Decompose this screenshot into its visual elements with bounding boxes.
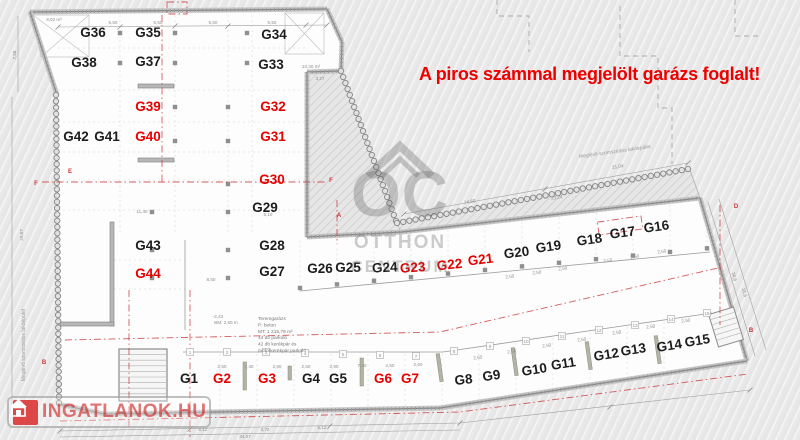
garage-spot-label-G26: G26 [307, 261, 333, 276]
garage-spot-label-G24: G24 [372, 259, 399, 275]
svg-text:11: 11 [560, 334, 565, 339]
garage-spot-label-G29: G29 [252, 200, 278, 215]
info-line: 42 db kerékpár és [258, 342, 297, 348]
info-line: P: beton [258, 322, 276, 328]
info-line: Teremgarázs [258, 316, 286, 322]
garage-spot-label-G20: G20 [503, 244, 530, 262]
dimension-label: 11,40 [136, 209, 148, 214]
garage-spot-label-G21: G21 [467, 250, 495, 268]
dimension-label: 2,60 [273, 364, 282, 369]
garage-spot-label-G40: G40 [135, 129, 161, 144]
section-marker: B [749, 328, 754, 334]
dimension-label: 2,90 [330, 364, 339, 369]
section-marker: A [337, 213, 342, 219]
garage-spot-label-G25: G25 [335, 260, 361, 275]
svg-text:13: 13 [632, 323, 638, 328]
svg-text:10: 10 [523, 339, 529, 344]
dimension-label: 5,50 [209, 20, 218, 25]
garage-spot-label-G38: G38 [71, 55, 97, 70]
svg-text:14: 14 [668, 317, 674, 322]
logo-text: INGATLANOK.HU [42, 401, 206, 423]
garage-spot-label-G2: G2 [213, 371, 231, 386]
garage-spot-label-G39: G39 [135, 99, 161, 114]
svg-text:2: 2 [226, 350, 229, 355]
dimension-label: 21,04 [612, 163, 625, 170]
garage-spot-label-G4: G4 [302, 371, 321, 386]
ingatlanok-logo: INGATLANOK.HU [7, 396, 211, 428]
svg-text:8: 8 [453, 349, 456, 354]
dimension-label: -2,43 [213, 314, 224, 319]
garage-spot-label-G43: G43 [135, 238, 161, 253]
garage-spot-label-G44: G44 [135, 266, 161, 281]
neighbor-label-top: Meglévő szomszédos lakóépület [579, 144, 652, 160]
garage-spot-label-G27: G27 [259, 264, 285, 279]
dimension-label: 3,72 [261, 427, 270, 432]
dimension-label: 2,50 [218, 364, 227, 369]
dimension-label: 2,50 [386, 363, 395, 368]
svg-text:6: 6 [379, 353, 382, 358]
dimension-label: BM: 2,65 m [214, 320, 238, 325]
garage-spot-label-G32: G32 [260, 99, 286, 114]
floor-plan-image: 123456789101112131415 5,505,505,505,507,… [0, 0, 800, 440]
dimension-label: 5,50 [268, 20, 277, 25]
section-marker: E [68, 169, 72, 175]
garage-spot-label-G42: G42 [63, 129, 89, 144]
garage-spot-label-G31: G31 [260, 129, 286, 144]
garage-spot-label-G33: G33 [258, 57, 284, 72]
garage-spot-label-G9: G9 [481, 367, 501, 384]
dimension-label: 24,07 [19, 229, 24, 241]
dimension-label: 5,12 [318, 425, 327, 430]
garage-spot-label-G36: G36 [80, 25, 106, 40]
garage-spot-label-G37: G37 [135, 54, 161, 69]
dimension-label: 14,60 [464, 198, 477, 205]
garage-spot-label-G30: G30 [259, 172, 285, 187]
info-line: MT: 1 215,78 m² [258, 329, 293, 335]
garage-spot-label-G1: G1 [180, 371, 199, 386]
svg-text:12: 12 [596, 328, 602, 333]
dimension-label: 7,40 [245, 364, 254, 369]
info-line: 44 db parkoló [258, 335, 287, 341]
dimension-label: 2,50 [302, 364, 311, 369]
dimension-label: 34,07 [239, 434, 251, 439]
garage-spot-label-G3: G3 [258, 371, 277, 386]
svg-text:1: 1 [189, 350, 192, 355]
garage-spot-label-G34: G34 [261, 27, 287, 42]
garage-spot-label-G8: G8 [454, 371, 474, 388]
dimension-label: 2,50 [414, 362, 423, 367]
garage-spot-label-G6: G6 [374, 371, 393, 386]
dimension-label: 10,30 m² [302, 64, 321, 69]
section-marker: F [329, 178, 333, 184]
dimension-label: 3,27 [316, 76, 325, 81]
neighbor-wedge [306, 71, 402, 237]
occupied-warning-text: A piros számmal megjelölt garázs foglalt… [419, 64, 749, 85]
dimension-label: 7,58 [12, 50, 17, 59]
info-line: motorkerékpár parkoló [258, 348, 306, 354]
svg-text:15: 15 [704, 311, 710, 316]
garage-spot-label-G22: G22 [436, 256, 463, 274]
dimension-label: 7,40 [358, 363, 367, 368]
dimension-label: 5,50 [109, 20, 118, 25]
section-marker: D [734, 204, 739, 210]
svg-text:9: 9 [489, 344, 492, 349]
house-icon [13, 400, 38, 425]
stairwell-bottom-left [119, 349, 167, 401]
neighbor-label-left: Meglévő szomszédos lakóépület [21, 308, 27, 381]
dimension-label: 9,02 m² [46, 17, 62, 22]
garage-spot-label-G28: G28 [259, 238, 285, 253]
garage-spot-label-G35: G35 [135, 25, 161, 40]
garage-spot-label-G7: G7 [401, 371, 419, 386]
garage-spot-label-G23: G23 [399, 259, 426, 276]
section-marker: B [42, 360, 47, 366]
section-marker: F [34, 181, 38, 187]
dimension-label: 8,50 [207, 277, 216, 282]
svg-text:7: 7 [415, 354, 418, 359]
garage-spot-label-G5: G5 [329, 371, 348, 386]
svg-text:5: 5 [342, 352, 345, 357]
garage-spot-label-G41: G41 [94, 129, 120, 144]
